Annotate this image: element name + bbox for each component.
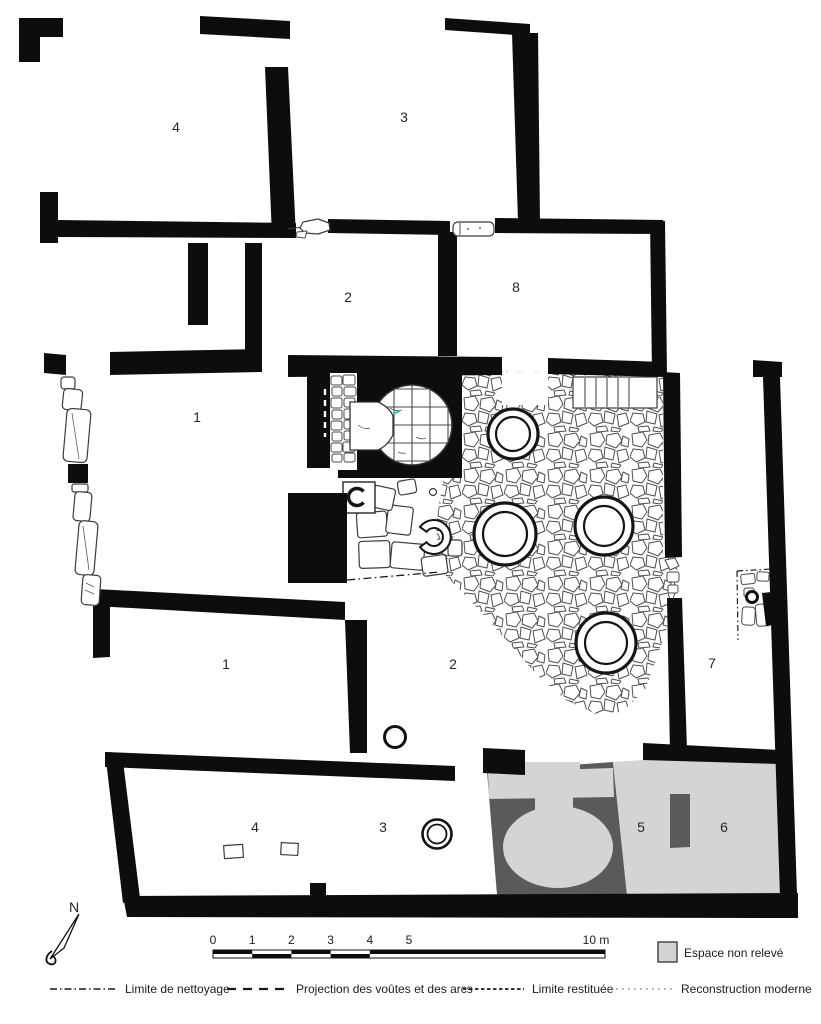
staircase bbox=[573, 377, 657, 408]
room-label: 3 bbox=[379, 819, 387, 835]
threshold-stone-east bbox=[453, 222, 494, 236]
legend-area-label: Espace non relevé bbox=[684, 946, 784, 960]
floor-slab-1 bbox=[224, 844, 244, 858]
rubble-area bbox=[436, 371, 678, 714]
room-label: 2 bbox=[449, 656, 457, 672]
room-label: 4 bbox=[172, 119, 180, 135]
legend-label: Projection des voûtes et des arcs bbox=[296, 982, 473, 996]
room-label: 8 bbox=[512, 279, 520, 295]
mill-neck bbox=[350, 402, 393, 450]
scale-bar: 0 1 2 3 4 5 10 m bbox=[210, 933, 610, 958]
archaeological-plan-page: 4 3 2 8 1 1 2 7 4 3 5 6 N 0 1 2 3 4 5 bbox=[0, 0, 821, 1024]
room-label: 1 bbox=[193, 409, 201, 425]
doorway-gap-2 bbox=[300, 468, 338, 493]
north-arrow: N bbox=[46, 899, 79, 964]
scale-tick: 3 bbox=[327, 933, 334, 947]
dolium-circle-3 bbox=[575, 497, 633, 555]
dark-gray-pillar bbox=[670, 794, 690, 848]
room-label: 7 bbox=[708, 655, 716, 671]
ring-feature bbox=[423, 820, 452, 849]
scale-tick: 2 bbox=[288, 933, 295, 947]
small-circle-feature bbox=[385, 727, 406, 748]
scale-tick: 4 bbox=[366, 933, 373, 947]
dolium-circle-2 bbox=[474, 503, 536, 565]
legend-label: Limite restituée bbox=[532, 982, 614, 996]
room-label: 6 bbox=[720, 819, 728, 835]
dolium-circle-1 bbox=[488, 409, 538, 459]
dolium-circle-4 bbox=[576, 613, 636, 673]
room-label: 4 bbox=[251, 819, 259, 835]
room-label: 5 bbox=[637, 819, 645, 835]
c-shaped-basin bbox=[343, 482, 375, 513]
site-plan-drawing: 4 3 2 8 1 1 2 7 4 3 5 6 N 0 1 2 3 4 5 bbox=[0, 0, 821, 1024]
legend-label: Limite de nettoyage bbox=[125, 982, 230, 996]
scale-tick: 5 bbox=[406, 933, 413, 947]
ashlar-wall bbox=[61, 377, 101, 606]
room-label: 2 bbox=[344, 289, 352, 305]
room-label: 1 bbox=[222, 656, 230, 672]
doorway-gap bbox=[502, 372, 548, 405]
legend-label: Reconstruction moderne bbox=[681, 982, 812, 996]
north-label: N bbox=[69, 899, 79, 915]
scale-tick: 1 bbox=[249, 933, 256, 947]
scale-end-label: 10 m bbox=[583, 933, 610, 947]
horseshoe-feature bbox=[420, 520, 451, 554]
scale-tick: 0 bbox=[210, 933, 217, 947]
floor-slab-2 bbox=[281, 843, 299, 856]
unreported-area-swatch bbox=[658, 942, 677, 962]
room-label: 3 bbox=[400, 109, 408, 125]
